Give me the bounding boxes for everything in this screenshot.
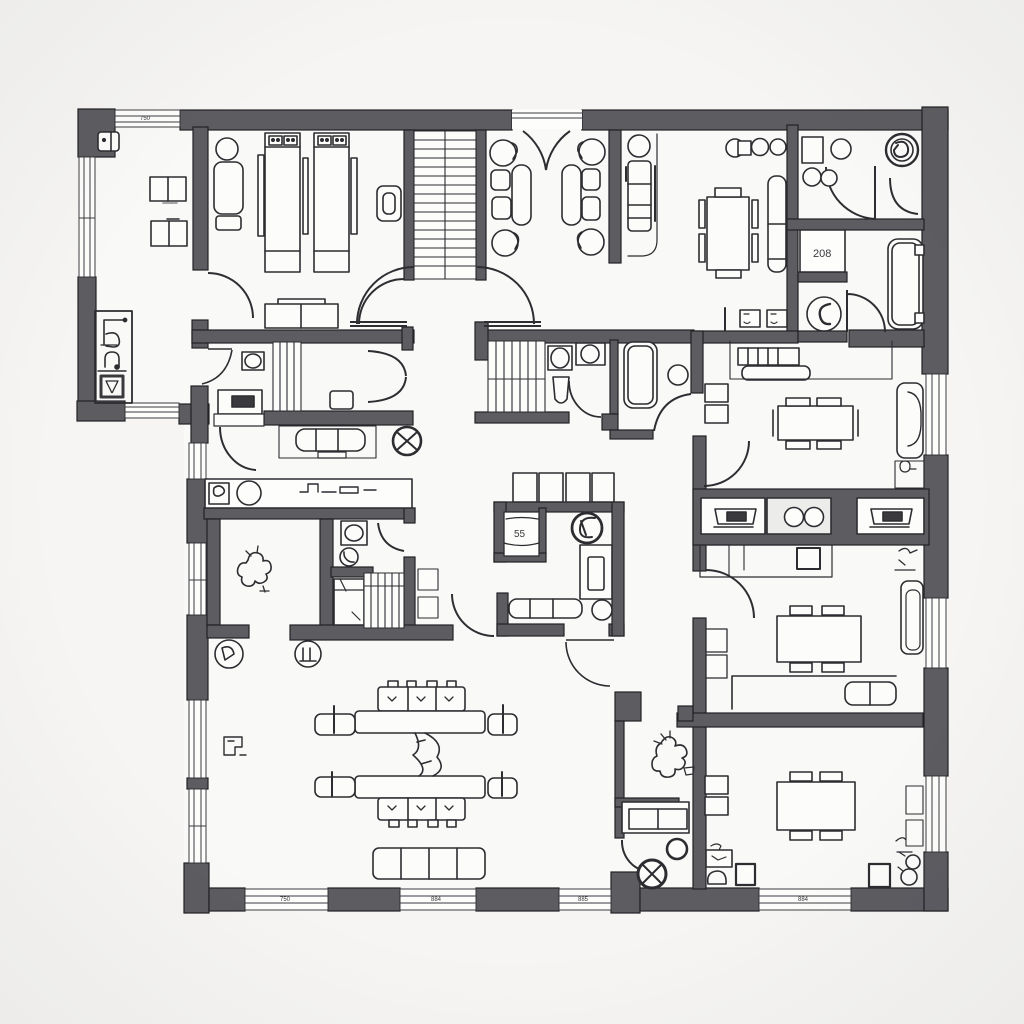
svg-text:55: 55	[514, 529, 526, 540]
svg-text:750: 750	[280, 897, 291, 903]
svg-text:208: 208	[813, 248, 831, 260]
svg-text:885: 885	[578, 897, 589, 903]
svg-text:884: 884	[431, 897, 442, 903]
svg-text:884: 884	[798, 897, 809, 903]
svg-text:750: 750	[140, 116, 151, 122]
